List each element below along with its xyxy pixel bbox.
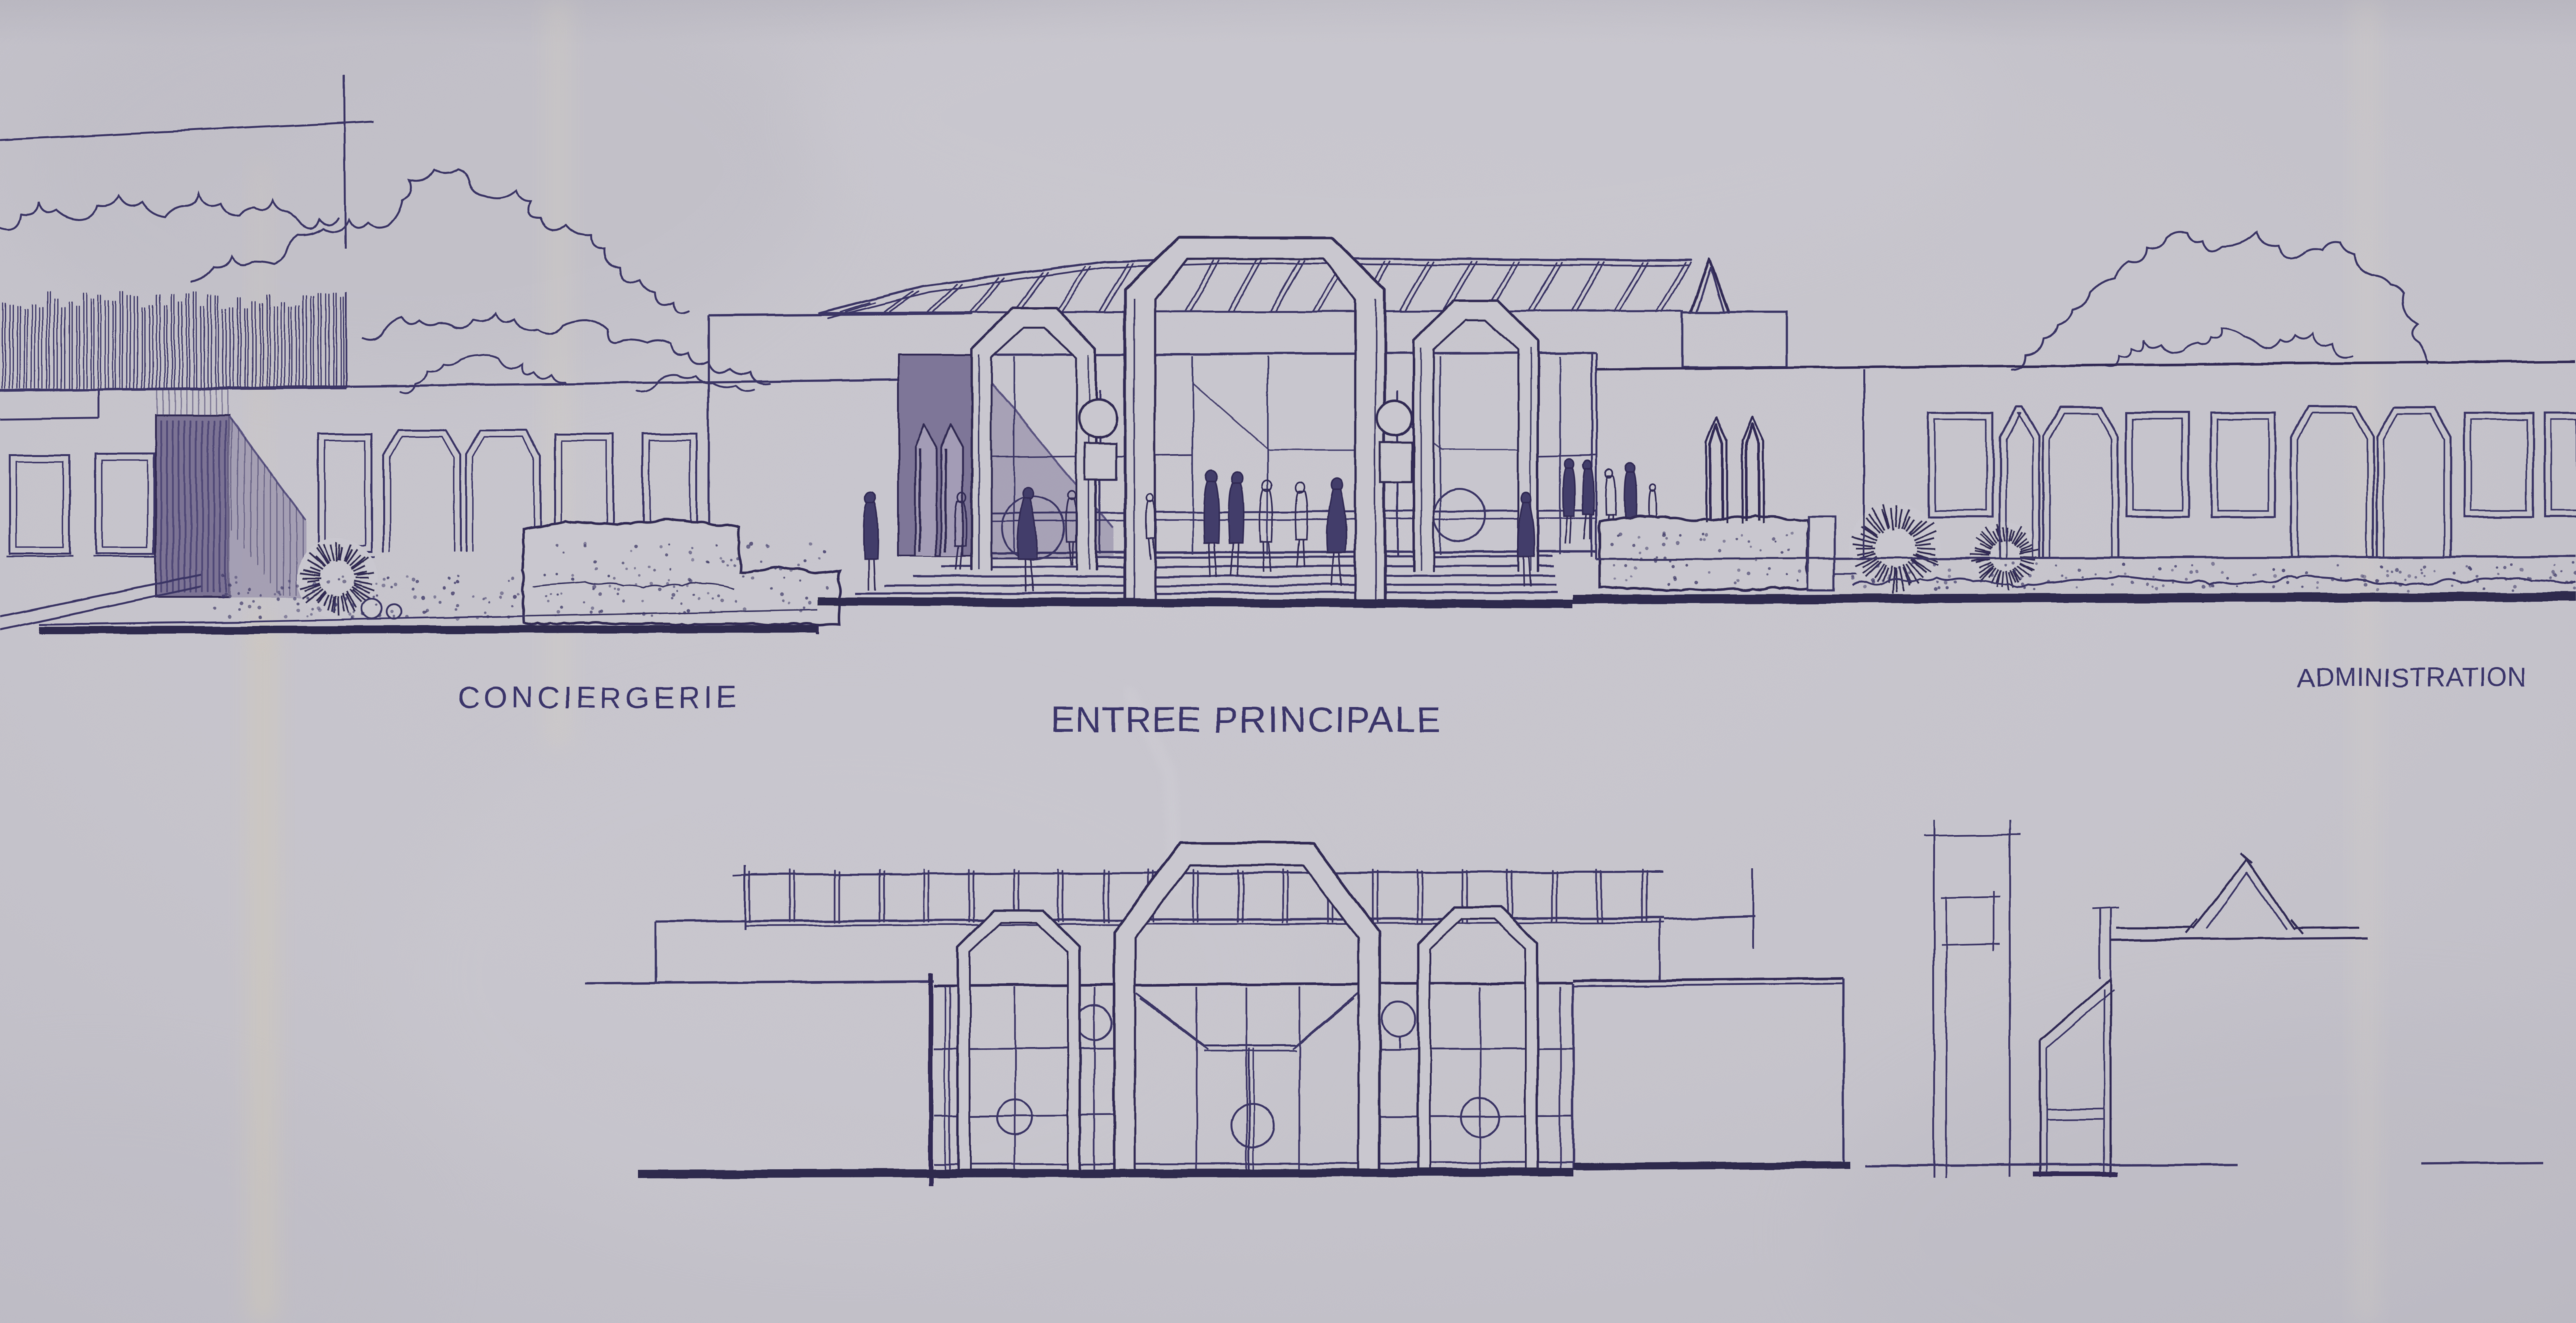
svg-text:CONCIERGERIE: CONCIERGERIE (458, 680, 740, 714)
svg-text:ENTREE: ENTREE (1050, 699, 1202, 740)
svg-text:ADMINISTRATION: ADMINISTRATION (2296, 662, 2527, 692)
svg-text:PRINCIPALE: PRINCIPALE (1214, 699, 1442, 740)
